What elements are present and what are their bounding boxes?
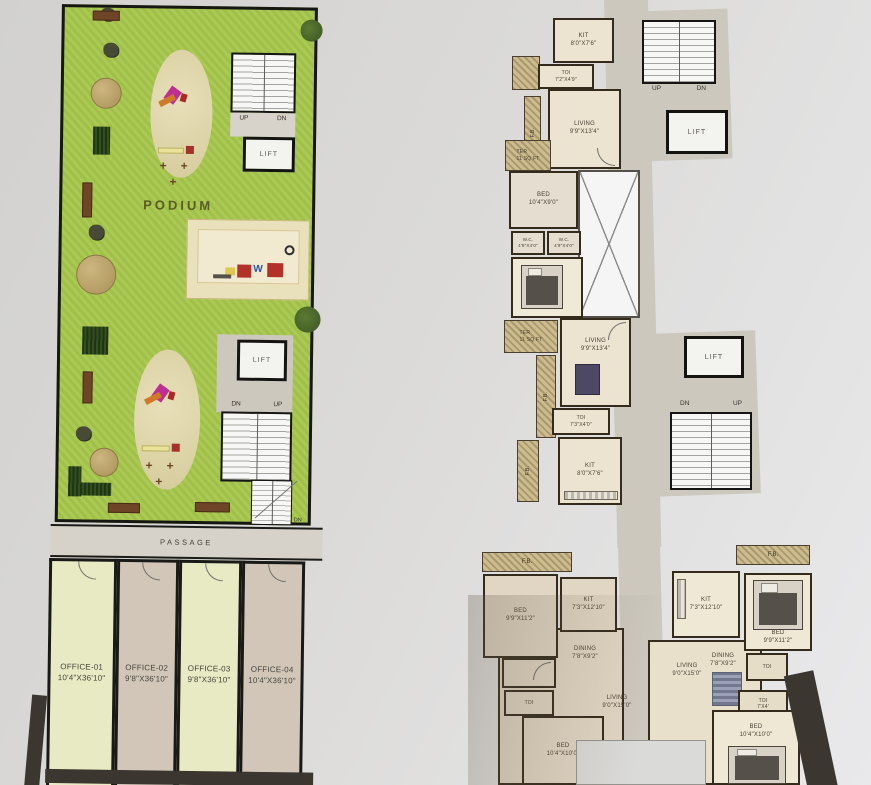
room-wc: W.C.4'9"X4'0" bbox=[511, 231, 545, 255]
room-bed: BED10'4"X10'0" bbox=[712, 710, 800, 785]
room-toi: TOI7'2"X4'9" bbox=[538, 64, 594, 89]
jungle-gym-icon: + bbox=[145, 459, 152, 471]
seat-furniture bbox=[237, 265, 251, 278]
up-label: UP bbox=[652, 85, 661, 92]
room-kit: KIT8'0"X7'6" bbox=[558, 437, 622, 505]
photo-edge bbox=[45, 769, 313, 785]
office-unit-04: OFFICE-0410'4"X36'10" bbox=[239, 561, 305, 785]
room-toi: TOI bbox=[746, 653, 788, 681]
lift-label: LIFT bbox=[260, 151, 278, 158]
entry-lobby bbox=[502, 658, 556, 688]
tree bbox=[294, 306, 320, 332]
lift-label: LIFT bbox=[253, 357, 271, 364]
podium-plan: + + + + + + W PODIUM UP DN LIFT bbox=[45, 0, 346, 785]
bush bbox=[89, 224, 104, 239]
dn-label: DN bbox=[277, 115, 286, 122]
kitchen-counter bbox=[564, 491, 618, 500]
room-kit: KIT8'0"X7'6" bbox=[553, 18, 614, 63]
kitchen-counter bbox=[677, 579, 686, 619]
seating-deck: W bbox=[186, 219, 310, 301]
floorplan-photo: + + + + + + W PODIUM UP DN LIFT bbox=[0, 0, 871, 785]
room-living: LIVING9'9"X13'4" bbox=[548, 89, 621, 169]
planter-ring bbox=[284, 245, 294, 255]
bed-icon bbox=[521, 265, 563, 309]
passage-label: PASSAGE bbox=[160, 538, 213, 548]
photo-edge bbox=[24, 695, 47, 785]
stair-block bbox=[642, 20, 716, 84]
fb-strip: F.B. bbox=[517, 440, 539, 502]
office-unit-01: OFFICE-0110'4"X36'10" bbox=[46, 558, 117, 785]
lift-room: LIFT bbox=[243, 137, 295, 173]
office-label: OFFICE-0410'4"X36'10" bbox=[248, 665, 296, 687]
door-arc bbox=[268, 564, 286, 582]
bench bbox=[108, 503, 140, 513]
hedge bbox=[82, 326, 108, 354]
fb-label: F.B. bbox=[768, 552, 778, 558]
lift-room: LIFT bbox=[666, 110, 728, 154]
hedge bbox=[68, 482, 111, 496]
door-arc bbox=[205, 563, 223, 581]
room-kit: KIT7'3"X12'10" bbox=[560, 577, 617, 632]
bench bbox=[82, 371, 92, 403]
room-toi: TOI7'3"X4'0" bbox=[552, 408, 610, 435]
office-label: OFFICE-039'8"X36'10" bbox=[187, 664, 230, 686]
play-equipment bbox=[172, 444, 180, 452]
office-label: OFFICE-0110'4"X36'10" bbox=[58, 662, 106, 684]
duct-box bbox=[578, 170, 640, 318]
hedge bbox=[93, 127, 110, 155]
up-label: UP bbox=[273, 401, 282, 408]
seat-furniture: W bbox=[253, 264, 263, 275]
jungle-gym-icon: + bbox=[160, 159, 167, 171]
room-bed: BED10'4"X9'8" bbox=[511, 257, 583, 318]
room-living: LIVING9'9"X13'4" bbox=[560, 318, 631, 407]
sofa-icon bbox=[575, 364, 600, 395]
room-bed: BED9'9"X11'2" bbox=[483, 574, 558, 658]
office-unit-03: OFFICE-039'8"X36'10" bbox=[176, 560, 242, 785]
jungle-gym-icon: + bbox=[155, 475, 162, 487]
dn-label: DN bbox=[697, 85, 706, 92]
stair-labels: DN UP bbox=[670, 400, 752, 407]
door-arc bbox=[533, 662, 551, 680]
stair-landing: UP DN bbox=[230, 112, 295, 137]
seat-furniture bbox=[267, 263, 283, 277]
bush bbox=[76, 426, 91, 440]
living-area: LIVING9'0"X15'0" bbox=[590, 692, 644, 714]
seat-furniture bbox=[213, 274, 231, 278]
fb-strip: F.B. bbox=[736, 545, 810, 565]
stair-block bbox=[220, 411, 292, 482]
fb-label: F.B. bbox=[522, 559, 532, 565]
bed-icon bbox=[728, 746, 786, 784]
door-arc bbox=[78, 561, 96, 579]
dining-area: DINING7'8"X9'2" bbox=[556, 643, 614, 665]
door-arc bbox=[142, 562, 160, 580]
exit-stair bbox=[251, 480, 293, 526]
living-area: LIVING9'0"X15'0" bbox=[662, 660, 712, 682]
tree bbox=[300, 19, 322, 41]
jungle-gym-icon: + bbox=[181, 160, 188, 172]
office-label: OFFICE-029'8"X36'10" bbox=[125, 663, 168, 685]
bench bbox=[195, 502, 230, 512]
stair-block bbox=[230, 52, 296, 113]
room-ter: TER11 SQ FT bbox=[505, 140, 551, 171]
door-arc bbox=[608, 322, 626, 340]
play-bench bbox=[158, 147, 184, 153]
fb-label: F.B. bbox=[543, 392, 549, 401]
lift-label: LIFT bbox=[688, 129, 706, 136]
office-unit-02: OFFICE-029'8"X36'10" bbox=[114, 559, 179, 785]
bush bbox=[103, 43, 118, 57]
up-label: UP bbox=[733, 400, 742, 407]
play-equipment bbox=[186, 146, 194, 154]
bed-icon bbox=[753, 580, 803, 630]
stair-labels: UP DN bbox=[642, 85, 716, 92]
door-arc bbox=[597, 148, 615, 166]
bench bbox=[93, 11, 120, 21]
fb-box bbox=[512, 56, 540, 90]
open-slab bbox=[576, 740, 706, 785]
stair-block bbox=[670, 412, 752, 490]
stair-labels: DN UP bbox=[221, 400, 292, 408]
jungle-gym-icon: + bbox=[169, 176, 176, 188]
room-wc: W.C.4'9"X4'0" bbox=[547, 231, 581, 255]
lift-room: LIFT bbox=[684, 336, 744, 378]
dn-label: DN bbox=[231, 400, 240, 407]
play-bench bbox=[142, 445, 170, 451]
fb-label: F.B. bbox=[530, 128, 536, 137]
room-bed: BED9'9"X11'2" bbox=[744, 573, 812, 651]
bench bbox=[82, 182, 92, 217]
fb-label: F.B. bbox=[525, 466, 531, 475]
up-label: UP bbox=[239, 115, 248, 122]
dn-label: DN bbox=[294, 517, 302, 523]
room-toi: TOI bbox=[504, 690, 554, 716]
room-ter: TER11 SQ FT bbox=[504, 320, 558, 353]
passage-strip: PASSAGE bbox=[50, 524, 322, 561]
room-kit: KIT7'3"X12'10" bbox=[672, 571, 740, 638]
fb-strip: F.B. bbox=[482, 552, 572, 572]
lift-label: LIFT bbox=[705, 354, 723, 361]
lift-room: LIFT bbox=[237, 340, 288, 382]
room-bed: BED10'4"X9'0" bbox=[509, 171, 578, 229]
podium-label: PODIUM bbox=[143, 197, 233, 213]
jungle-gym-icon: + bbox=[166, 460, 173, 472]
dn-label: DN bbox=[680, 400, 689, 407]
